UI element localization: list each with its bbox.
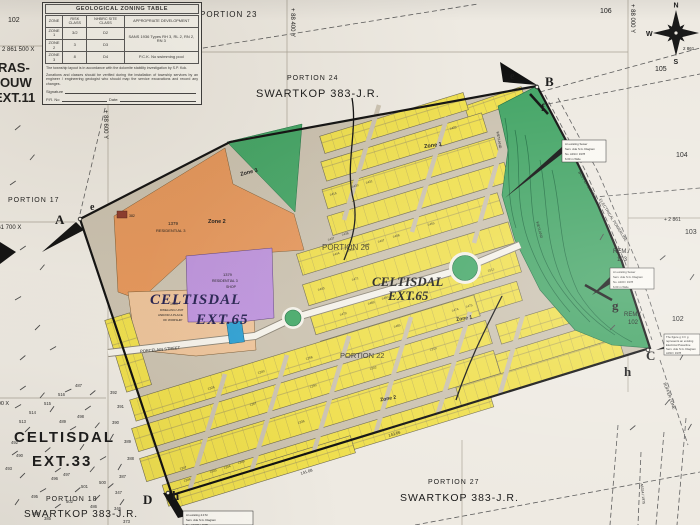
portion23-label: PORTION 23 bbox=[200, 10, 257, 19]
table-note-2: Zonations and classes should be verified… bbox=[46, 73, 198, 86]
col-zone: ZONE bbox=[46, 16, 63, 28]
svg-text:Serv. vide S.G. Diagram: Serv. vide S.G. Diagram bbox=[613, 275, 644, 279]
marker-h-south: h bbox=[172, 488, 180, 503]
erf-number: 515 bbox=[44, 401, 52, 406]
shop-label: SHOP bbox=[226, 285, 237, 289]
erf382-number: 382 bbox=[129, 214, 135, 218]
marker-g: g bbox=[612, 298, 619, 313]
marker-b-wedge bbox=[500, 62, 537, 85]
celtisdal-ext65-title2-line2: EXT.65 bbox=[387, 288, 429, 303]
shop-erf-number: 1379 bbox=[223, 272, 233, 277]
celtisdal-ext65-title-line2: EXT.65 bbox=[195, 312, 249, 328]
col-development: APPROPRIATE DEVELOPMENT bbox=[124, 16, 198, 28]
swartkop-label-southwest: SWARTKOP 383-J.R. bbox=[24, 509, 138, 520]
svg-text:A333 / 1978: A333 / 1978 bbox=[666, 351, 682, 355]
erf1380-use-3: OF WORSHIP bbox=[163, 318, 182, 322]
erf-number: 496 bbox=[51, 476, 59, 481]
buffer-zone-label-2: BUFFER ZONE bbox=[662, 382, 676, 411]
dev-zone3: P.C.K. No swimming pool bbox=[124, 52, 198, 64]
note-box-servitude-d: An existing 4.0 M Serv. vide S.G. Diagra… bbox=[183, 511, 253, 525]
compass-w: W bbox=[646, 31, 653, 38]
zone2-risk: 3 bbox=[63, 39, 87, 51]
erf-number: 387 bbox=[119, 474, 127, 479]
col-risk: RISK CLASS bbox=[63, 16, 87, 28]
coord-88400y: + 88 400 Y bbox=[289, 8, 295, 37]
raslouw-title-line2: LOUW bbox=[0, 75, 32, 90]
portion27-label: PORTION 27 bbox=[428, 479, 480, 486]
erf-number: 495 bbox=[31, 494, 39, 499]
svg-text:6.00 m Wide: 6.00 m Wide bbox=[613, 285, 629, 289]
erf1379-number: 1379 bbox=[168, 221, 179, 226]
zoning-table: ZONE RISK CLASS NHBRC SITE CLASS APPROPR… bbox=[45, 15, 199, 64]
zone1-cell: ZONE 1 bbox=[46, 27, 63, 39]
erf-number: 500 bbox=[99, 480, 107, 485]
erf-number: 513 bbox=[19, 419, 27, 424]
compass-coordinate: 2 861 bbox=[683, 46, 695, 51]
prno-date-row: P.R. No Date: bbox=[46, 97, 198, 102]
erf-number: 347 bbox=[115, 490, 123, 495]
coord-861700x: 861 700 X bbox=[0, 225, 21, 231]
coord-2861-right: + 2 861 bbox=[664, 217, 681, 223]
celtisdal-ext65-title-line1: CELTISDAL bbox=[150, 292, 241, 308]
area-number-102-right: 102 bbox=[672, 316, 684, 323]
erf-number: 498 bbox=[77, 414, 85, 419]
marker-e-west: e bbox=[90, 202, 95, 213]
erf1380-use-1: DWELLING UNIT bbox=[160, 308, 184, 312]
erf1380-use-2: AND/OR A PLACE bbox=[158, 313, 183, 317]
signature-row: Signature bbox=[46, 89, 198, 94]
svg-text:An existing Sewer: An existing Sewer bbox=[613, 270, 635, 274]
portion18-label: PORTION 18 bbox=[46, 496, 98, 503]
area-number-106: 106 bbox=[600, 8, 612, 15]
rem103-label: REM./ bbox=[613, 249, 630, 255]
erf-number: 490 bbox=[16, 453, 24, 458]
erf-number: 487 bbox=[75, 383, 83, 388]
erf-number: 388 bbox=[127, 456, 135, 461]
rem102-label: REM./ bbox=[624, 312, 641, 318]
area-number-102-topleft: 102 bbox=[8, 17, 20, 24]
svg-text:Serv. vide S.G. Diagram: Serv. vide S.G. Diagram bbox=[565, 147, 596, 151]
marker-a: A bbox=[55, 212, 65, 227]
zone2-site: D3 bbox=[87, 39, 124, 51]
celtisdal-ext33-title-line2: EXT.33 bbox=[32, 453, 92, 470]
area-number-103-edge: 103 bbox=[685, 229, 697, 236]
geological-zoning-table: GEOLOGICAL ZONING TABLE ZONE RISK CLASS … bbox=[42, 2, 202, 105]
zone2-label: Zone 2 bbox=[208, 219, 226, 225]
corner-point-a bbox=[78, 217, 82, 221]
coord-861900x: 861 900 X bbox=[0, 401, 9, 407]
erf-number: 497 bbox=[63, 472, 71, 477]
portion26-label: PORTION 26 bbox=[322, 243, 370, 252]
zone3-site: D4 bbox=[87, 52, 124, 64]
coord-2861500x: 2 861 500 X bbox=[2, 47, 34, 53]
dev-zone12: SANS 1936 Types RH 3, RL 2, RN 2, RN 3 bbox=[124, 27, 198, 51]
marker-h-east: h bbox=[624, 364, 632, 379]
coord-88000y: + 88 000 Y bbox=[629, 4, 635, 33]
col-site: NHBRC SITE CLASS bbox=[87, 16, 124, 28]
edge-wedge-west bbox=[0, 242, 16, 264]
marker-c: C bbox=[646, 348, 655, 363]
portion22-label: PORTION 22 bbox=[340, 351, 384, 360]
table-row: ZONE 3 8 D4 P.C.K. No swimming pool bbox=[46, 52, 199, 64]
erf382-stand bbox=[117, 211, 127, 218]
area-number-104: 104 bbox=[676, 152, 688, 159]
corner-point-b bbox=[535, 85, 539, 89]
erf-number: 390 bbox=[112, 420, 120, 425]
map-photo: 1416143014311425143714381443144414451446… bbox=[0, 0, 700, 525]
coord-88600y: + 88 600 Y bbox=[102, 110, 108, 139]
corner-point-d bbox=[166, 491, 170, 495]
svg-text:No. A160 / 1978: No. A160 / 1978 bbox=[613, 280, 634, 284]
erf-number: 392 bbox=[110, 390, 118, 395]
compass-n: N bbox=[674, 3, 679, 10]
raslouw-title-line3: EXT.11 bbox=[0, 90, 35, 105]
zoning-table-title: GEOLOGICAL ZONING TABLE bbox=[45, 4, 199, 14]
svg-text:An existing 4.0 M: An existing 4.0 M bbox=[186, 513, 208, 517]
zone3-risk: 8 bbox=[63, 52, 87, 64]
svg-text:An existing Sewer: An existing Sewer bbox=[565, 142, 587, 146]
area-number-105: 105 bbox=[655, 66, 667, 73]
erf-number: 391 bbox=[117, 404, 125, 409]
celtisdal-ext65-title2-line1: CELTISDAL bbox=[372, 274, 443, 289]
compass-rose: N W S E 2 861 bbox=[646, 3, 700, 67]
swartkop-label-north: SWARTKOP 383-J.R. bbox=[256, 88, 380, 100]
raslouw-title-line1: RAS- bbox=[0, 60, 30, 75]
zone1-risk: 3/2 bbox=[63, 27, 87, 39]
rem102-number: 102 bbox=[628, 320, 639, 326]
svg-text:No. A194 / 1978: No. A194 / 1978 bbox=[565, 152, 586, 156]
erf-number: 514 bbox=[29, 410, 37, 415]
servitude-number-label: A6334 / 1975 bbox=[640, 483, 646, 504]
erf-number: 389 bbox=[124, 439, 132, 444]
compass-s: S bbox=[674, 59, 679, 66]
erf-number: 501 bbox=[81, 484, 89, 489]
svg-text:6.00 m Wide: 6.00 m Wide bbox=[565, 157, 581, 161]
svg-text:Serv. vide S.G. Diagram: Serv. vide S.G. Diagram bbox=[186, 518, 217, 522]
portion24-label: PORTION 24 bbox=[287, 75, 339, 82]
zone3-cell: ZONE 3 bbox=[46, 52, 63, 64]
shop-zoning: RESIDENTIAL 3 bbox=[212, 279, 238, 283]
erf-number: 489 bbox=[59, 419, 67, 424]
erf-number: 493 bbox=[5, 466, 13, 471]
zone1-site: D2 bbox=[87, 27, 124, 39]
pr-no-label: P.R. No bbox=[46, 97, 60, 102]
erf-number: 516 bbox=[58, 392, 66, 397]
marker-e-north: e bbox=[510, 71, 515, 82]
table-row: ZONE 1 3/2 D2 SANS 1936 Types RH 3, RL 2… bbox=[46, 27, 199, 39]
marker-b: B bbox=[545, 74, 554, 89]
erf1379-zoning: RESIDENTIAL 3 bbox=[156, 228, 186, 233]
celtisdal-ext33-title-line1: CELTISDAL bbox=[14, 429, 115, 446]
date-label: Date: bbox=[109, 97, 119, 102]
marker-d: D bbox=[143, 492, 152, 507]
portion17-label: PORTION 17 bbox=[8, 197, 60, 204]
signature-label: Signature bbox=[46, 89, 63, 94]
zone2-cell: ZONE 2 bbox=[46, 39, 63, 51]
note-box-powerline: The figure g C h g represents an existin… bbox=[664, 334, 700, 355]
swartkop-label-southeast: SWARTKOP 383-J.R. bbox=[400, 492, 519, 504]
table-note-1: The township layout is in accordance wit… bbox=[46, 66, 198, 70]
rem103-number: 103 bbox=[617, 257, 628, 263]
